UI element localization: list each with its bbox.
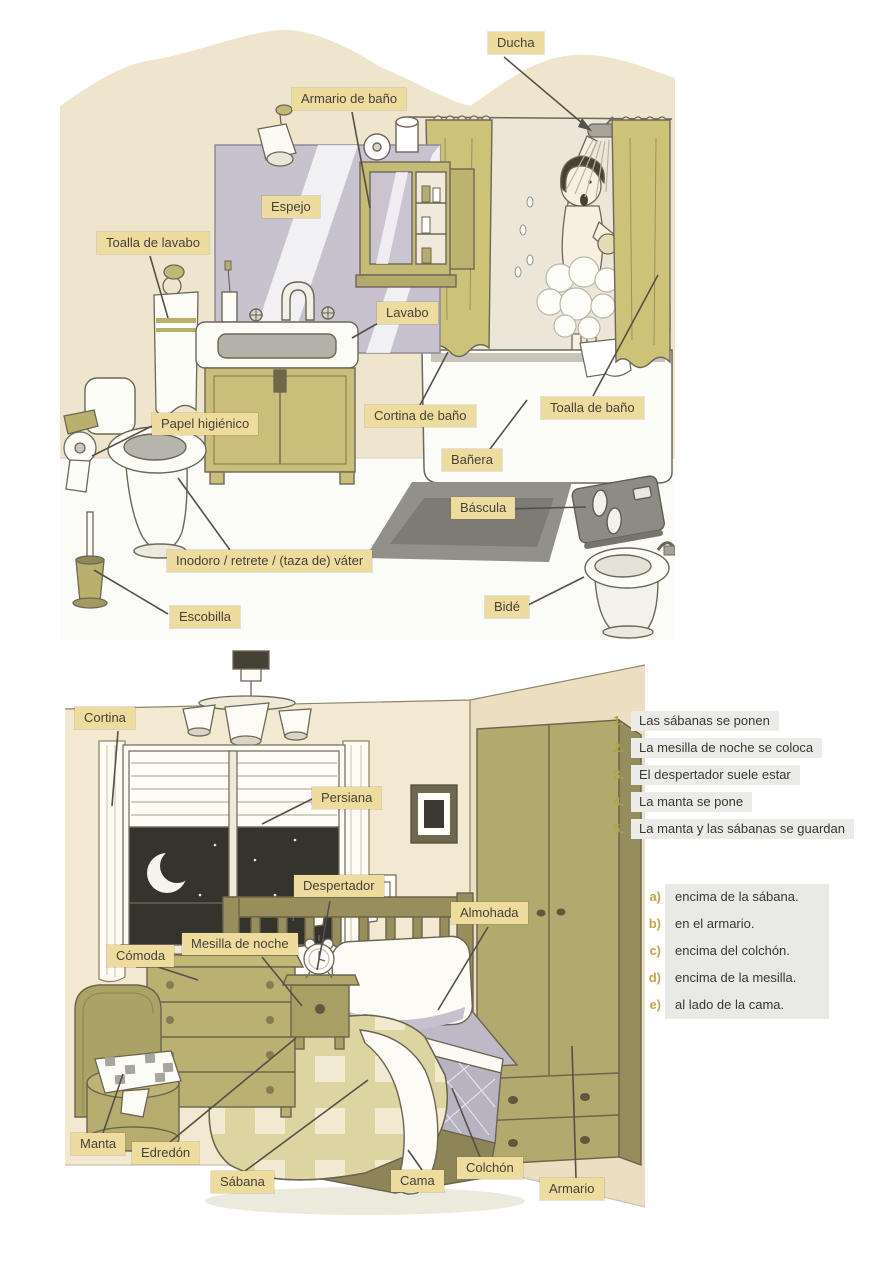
label-cortina-de-bano: Cortina de baño	[365, 405, 476, 427]
label-colchon: Colchón	[457, 1157, 523, 1179]
label-cama: Cama	[391, 1170, 444, 1192]
option-text: encima de la sábana.	[665, 884, 829, 911]
option-row: b) en el armario.	[637, 911, 829, 938]
sentence-row: 3. El despertador suele estar	[606, 765, 854, 792]
label-comoda: Cómoda	[107, 945, 174, 967]
sentence-number: 2.	[606, 738, 624, 755]
label-papel-higienico: Papel higiénico	[152, 413, 258, 435]
ceiling-lamp	[183, 651, 311, 746]
exercise-options: a) encima de la sábana. b) en el armario…	[637, 884, 829, 1019]
label-bascula: Báscula	[451, 497, 515, 519]
label-ducha: Ducha	[488, 32, 544, 54]
label-banera: Bañera	[442, 449, 502, 471]
sentence-text: Las sábanas se ponen	[631, 711, 779, 731]
exercise-sentences: 1. Las sábanas se ponen 2. La mesilla de…	[606, 711, 854, 846]
textbook-page: Ducha Armario de baño Espejo Toalla de l…	[0, 0, 893, 1263]
label-despertador: Despertador	[294, 875, 384, 897]
option-text: en el armario.	[665, 911, 829, 938]
label-cortina: Cortina	[75, 707, 135, 729]
option-row: c) encima del colchón.	[637, 938, 829, 965]
sentence-text: La manta se pone	[631, 792, 752, 812]
option-text: encima del colchón.	[665, 938, 829, 965]
label-armario-de-bano: Armario de baño	[292, 88, 406, 110]
option-text: al lado de la cama.	[665, 992, 829, 1019]
sentence-number: 1.	[606, 711, 624, 728]
label-armario: Armario	[540, 1178, 604, 1200]
label-edredon: Edredón	[132, 1142, 199, 1164]
label-sabana: Sábana	[211, 1171, 274, 1193]
label-toalla-de-bano: Toalla de baño	[541, 397, 644, 419]
option-text: encima de la mesilla.	[665, 965, 829, 992]
cabinet-open-door	[448, 169, 474, 269]
label-espejo: Espejo	[262, 196, 320, 218]
option-row: e) al lado de la cama.	[637, 992, 829, 1019]
label-inodoro: Inodoro / retrete / (taza de) váter	[167, 550, 372, 572]
sentence-number: 4.	[606, 792, 624, 809]
sentence-row: 4. La manta se pone	[606, 792, 854, 819]
option-row: a) encima de la sábana.	[637, 884, 829, 911]
label-lavabo: Lavabo	[377, 302, 438, 324]
option-letter: a)	[637, 884, 661, 911]
sentence-text: El despertador suele estar	[631, 765, 800, 785]
sentence-text: La manta y las sábanas se guardan	[631, 819, 854, 839]
sentence-number: 3.	[606, 765, 624, 782]
sentence-row: 2. La mesilla de noche se coloca	[606, 738, 854, 765]
option-letter: d)	[637, 965, 661, 992]
bathroom-illustration	[60, 20, 675, 640]
option-row: d) encima de la mesilla.	[637, 965, 829, 992]
option-letter: e)	[637, 992, 661, 1019]
sentence-number: 5.	[606, 819, 624, 836]
sentence-text: La mesilla de noche se coloca	[631, 738, 822, 758]
option-letter: c)	[637, 938, 661, 965]
label-bide: Bidé	[485, 596, 529, 618]
option-letter: b)	[637, 911, 661, 938]
label-persiana: Persiana	[312, 787, 381, 809]
sentence-row: 1. Las sábanas se ponen	[606, 711, 854, 738]
label-mesilla-de-noche: Mesilla de noche	[182, 933, 298, 955]
sentence-row: 5. La manta y las sábanas se guardan	[606, 819, 854, 846]
wall-picture	[411, 785, 457, 843]
label-manta: Manta	[71, 1133, 125, 1155]
label-almohada: Almohada	[451, 902, 528, 924]
label-toalla-de-lavabo: Toalla de lavabo	[97, 232, 209, 254]
label-escobilla: Escobilla	[170, 606, 240, 628]
